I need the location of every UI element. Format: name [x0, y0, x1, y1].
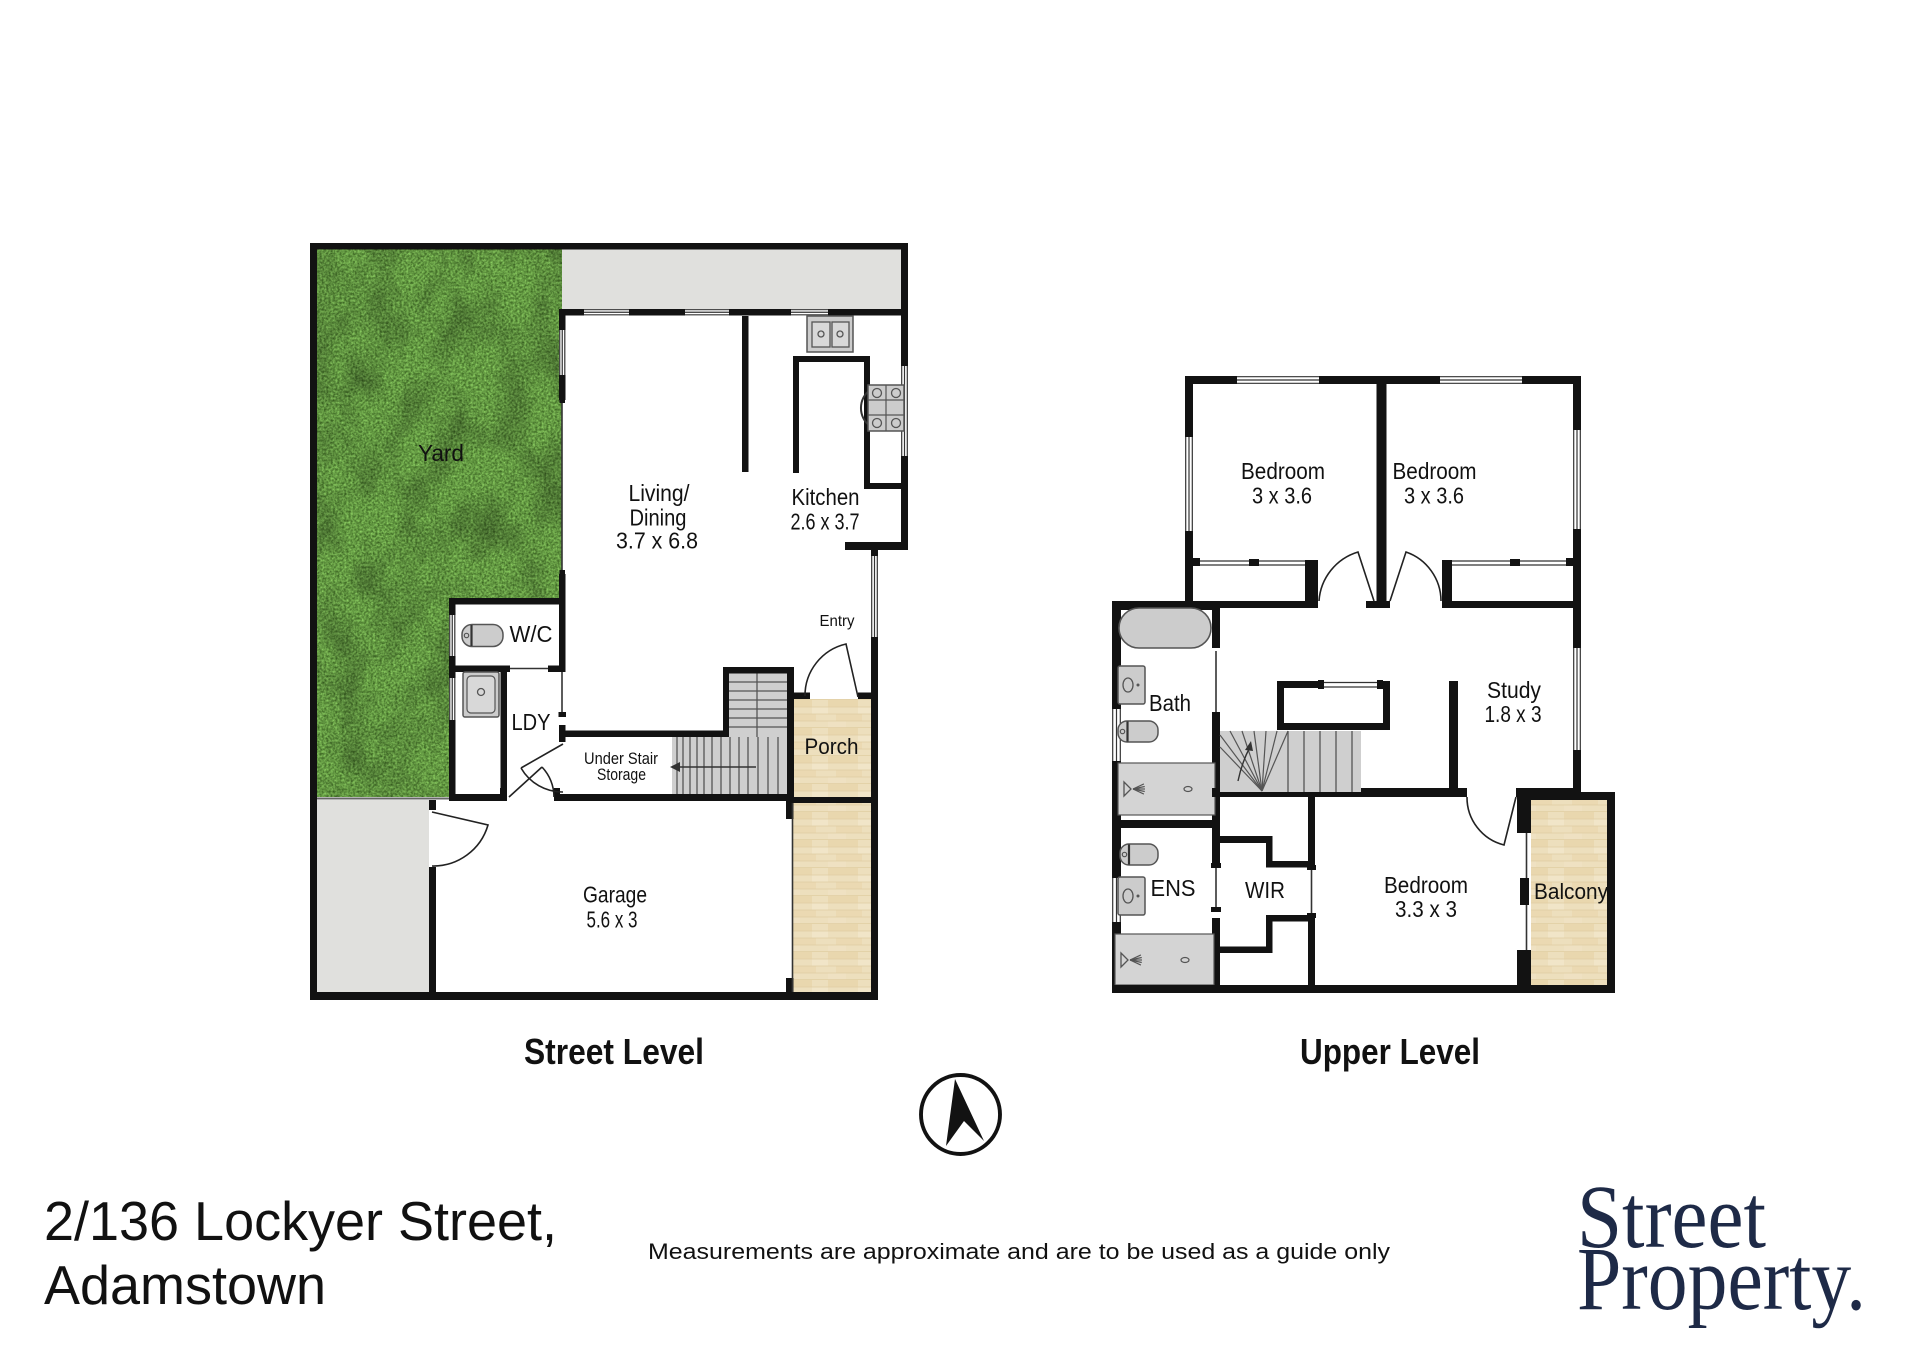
- svg-text:Porch: Porch: [805, 734, 859, 759]
- svg-text:Storage: Storage: [597, 766, 646, 784]
- svg-text:Yard: Yard: [418, 440, 464, 466]
- svg-text:Street Level: Street Level: [524, 1031, 704, 1072]
- svg-text:3 x 3.6: 3 x 3.6: [1404, 483, 1464, 509]
- svg-text:Bedroom: Bedroom: [1241, 458, 1325, 484]
- svg-text:Bedroom: Bedroom: [1384, 872, 1468, 898]
- svg-text:Measurements are approximate a: Measurements are approximate and are to …: [648, 1239, 1390, 1264]
- svg-text:2/136 Lockyer Street,: 2/136 Lockyer Street,: [44, 1190, 557, 1252]
- svg-text:Bath: Bath: [1149, 690, 1191, 716]
- svg-text:Adamstown: Adamstown: [44, 1254, 326, 1316]
- svg-text:W/C: W/C: [510, 621, 553, 647]
- svg-text:Entry: Entry: [820, 613, 855, 630]
- svg-text:ENS: ENS: [1151, 875, 1196, 901]
- svg-text:Study: Study: [1487, 677, 1541, 703]
- svg-text:WIR: WIR: [1245, 877, 1285, 903]
- svg-text:Bedroom: Bedroom: [1393, 458, 1477, 484]
- svg-text:1.8 x 3: 1.8 x 3: [1485, 701, 1542, 727]
- svg-text:Balcony: Balcony: [1534, 879, 1608, 904]
- svg-text:2.6 x 3.7: 2.6 x 3.7: [791, 509, 860, 535]
- svg-text:5.6 x 3: 5.6 x 3: [587, 907, 638, 933]
- svg-text:Property.: Property.: [1577, 1230, 1866, 1329]
- svg-text:Living/: Living/: [629, 480, 691, 506]
- svg-text:3 x 3.6: 3 x 3.6: [1252, 483, 1312, 509]
- svg-text:3.3 x 3: 3.3 x 3: [1395, 896, 1457, 922]
- svg-text:Kitchen: Kitchen: [792, 484, 860, 510]
- svg-text:Garage: Garage: [583, 882, 647, 908]
- svg-text:LDY: LDY: [512, 709, 551, 735]
- svg-text:3.7 x 6.8: 3.7 x 6.8: [616, 528, 698, 554]
- svg-text:Upper Level: Upper Level: [1300, 1031, 1480, 1072]
